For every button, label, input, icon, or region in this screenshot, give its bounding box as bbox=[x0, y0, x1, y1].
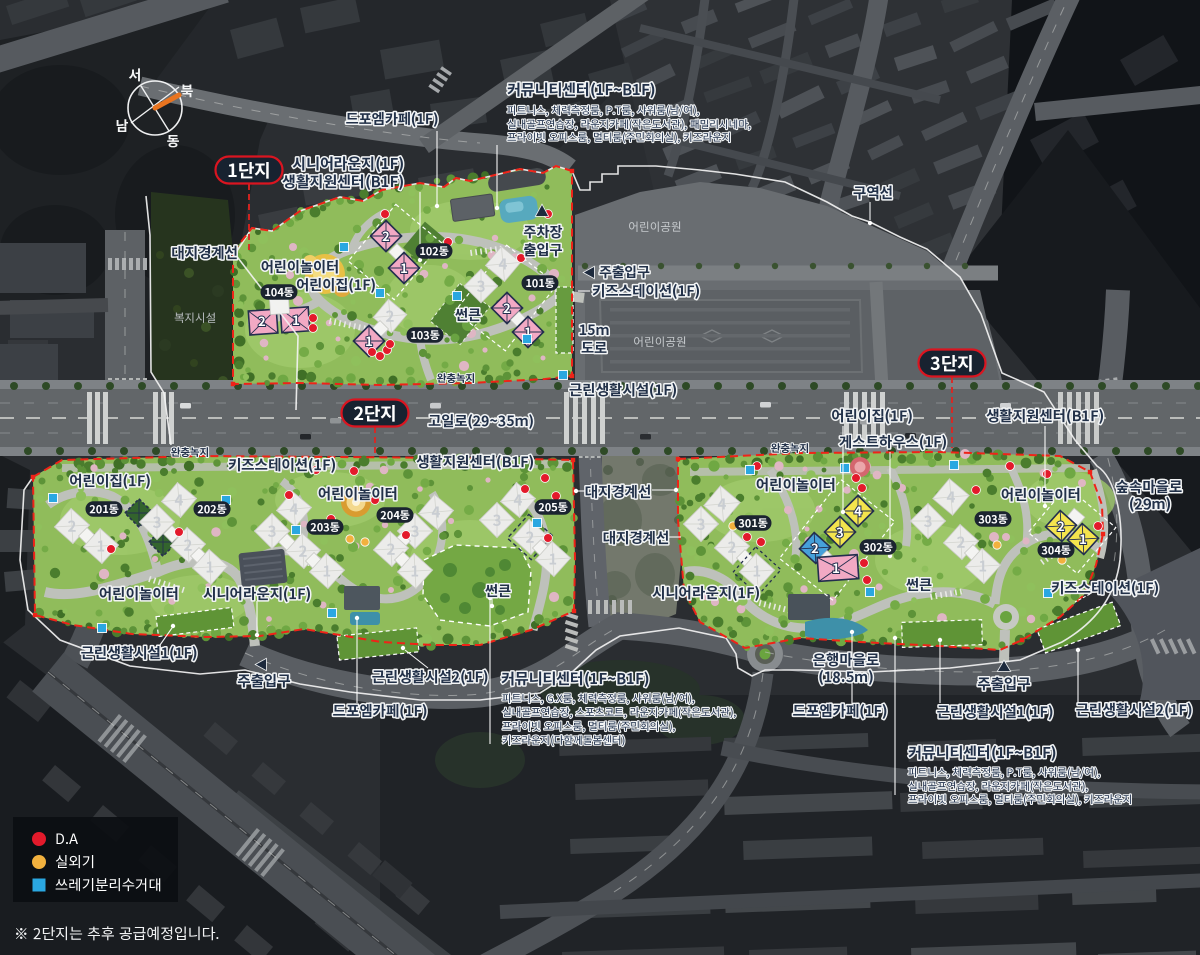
svg-text:102동: 102동 bbox=[419, 243, 449, 259]
svg-text:근린생활시설1(1F): 근린생활시설1(1F) bbox=[81, 642, 198, 663]
svg-text:2: 2 bbox=[68, 516, 77, 537]
svg-text:2: 2 bbox=[258, 311, 266, 330]
svg-text:시니어라운지(1F): 시니어라운지(1F) bbox=[203, 583, 312, 604]
svg-text:시니어라운지(1F): 시니어라운지(1F) bbox=[652, 582, 761, 603]
svg-text:어린이놀이터: 어린이놀이터 bbox=[318, 483, 398, 504]
svg-text:2: 2 bbox=[503, 298, 511, 317]
svg-text:완충녹지: 완충녹지 bbox=[437, 371, 476, 386]
svg-text:303동: 303동 bbox=[978, 511, 1008, 527]
svg-text:드포엠카페(1F): 드포엠카페(1F) bbox=[333, 700, 428, 721]
svg-text:101동: 101동 bbox=[525, 275, 555, 291]
svg-text:(29m): (29m) bbox=[1129, 493, 1172, 514]
svg-text:2: 2 bbox=[299, 541, 308, 562]
svg-text:2: 2 bbox=[526, 527, 535, 548]
svg-text:2: 2 bbox=[728, 537, 737, 558]
svg-text:4: 4 bbox=[854, 501, 862, 520]
svg-text:4: 4 bbox=[175, 490, 185, 511]
svg-text:키즈스테이션(1F): 키즈스테이션(1F) bbox=[592, 280, 701, 301]
svg-text:205동: 205동 bbox=[538, 499, 568, 515]
svg-text:게스트하우스(1F): 게스트하우스(1F) bbox=[839, 431, 948, 452]
svg-text:1: 1 bbox=[400, 258, 408, 277]
svg-text:동: 동 bbox=[167, 131, 180, 151]
svg-text:프라이빗 오피스룸, 멀티룸(주민회의실), 키즈라운지: 프라이빗 오피스룸, 멀티룸(주민회의실), 키즈라운지 bbox=[908, 792, 1133, 807]
svg-text:어린이놀이터: 어린이놀이터 bbox=[261, 257, 339, 277]
svg-text:키즈스테이션(1F): 키즈스테이션(1F) bbox=[1051, 577, 1160, 598]
svg-text:근린생활시설(1F): 근린생활시설(1F) bbox=[569, 379, 678, 400]
svg-text:104동: 104동 bbox=[264, 284, 294, 300]
svg-text:피트니스, 체력측정룸, P.T룸, 샤워룸(남/여),: 피트니스, 체력측정룸, P.T룸, 샤워룸(남/여), bbox=[908, 765, 1100, 780]
svg-text:※ 2단지는 추후 공급예정입니다.: ※ 2단지는 추후 공급예정입니다. bbox=[14, 923, 220, 944]
svg-text:어린이놀이터: 어린이놀이터 bbox=[756, 474, 836, 495]
svg-text:대지경계선: 대지경계선 bbox=[603, 527, 670, 548]
svg-text:프라이빗 오피스룸, 멀티룸(주민회의실), 키즈라운지: 프라이빗 오피스룸, 멀티룸(주민회의실), 키즈라운지 bbox=[507, 130, 732, 145]
svg-text:드포엠카페(1F): 드포엠카페(1F) bbox=[793, 700, 888, 721]
svg-text:3: 3 bbox=[477, 276, 486, 297]
svg-text:키즈라운지(다함께돌봄센터): 키즈라운지(다함께돌봄센터) bbox=[502, 733, 625, 748]
svg-text:고일로(29~35m): 고일로(29~35m) bbox=[428, 411, 533, 431]
svg-text:4: 4 bbox=[499, 254, 509, 275]
svg-text:202동: 202동 bbox=[197, 501, 227, 517]
svg-text:복지시설: 복지시설 bbox=[174, 310, 216, 326]
svg-text:어린이놀이터: 어린이놀이터 bbox=[1001, 484, 1081, 505]
svg-text:피트니스, G.X룸, 체력측정룸, 샤워룸(남/여),: 피트니스, G.X룸, 체력측정룸, 샤워룸(남/여), bbox=[502, 691, 695, 706]
svg-text:1: 1 bbox=[206, 557, 215, 578]
svg-text:피트니스, 체력측정룸, P.T룸, 샤워룸(남/여),: 피트니스, 체력측정룸, P.T룸, 샤워룸(남/여), bbox=[507, 103, 699, 118]
svg-text:3단지: 3단지 bbox=[930, 350, 974, 376]
svg-text:1: 1 bbox=[97, 536, 106, 557]
svg-text:1: 1 bbox=[411, 561, 420, 582]
svg-text:103동: 103동 bbox=[410, 327, 440, 343]
svg-text:2: 2 bbox=[811, 538, 819, 557]
svg-text:1: 1 bbox=[1079, 529, 1087, 548]
svg-text:3: 3 bbox=[836, 522, 844, 541]
svg-text:4: 4 bbox=[718, 494, 728, 515]
svg-text:실내골프연습장, 스포츠코트, 라운지카페(작은도서관),: 실내골프연습장, 스포츠코트, 라운지카페(작은도서관), bbox=[502, 705, 736, 720]
svg-text:1: 1 bbox=[292, 310, 300, 329]
svg-text:썬큰: 썬큰 bbox=[485, 581, 511, 601]
svg-text:15m: 15m bbox=[579, 320, 609, 340]
svg-text:1: 1 bbox=[979, 556, 988, 577]
svg-text:2단지: 2단지 bbox=[353, 400, 397, 426]
svg-text:주출입구: 주출입구 bbox=[599, 261, 650, 281]
svg-text:4: 4 bbox=[290, 499, 300, 520]
svg-text:출입구: 출입구 bbox=[523, 240, 562, 260]
svg-text:304동: 304동 bbox=[1041, 542, 1071, 558]
svg-text:(18.5m): (18.5m) bbox=[818, 666, 874, 687]
svg-text:1: 1 bbox=[549, 549, 558, 570]
svg-text:301동: 301동 bbox=[738, 515, 768, 531]
svg-text:커뮤니티센터(1F~B1F): 커뮤니티센터(1F~B1F) bbox=[507, 79, 656, 100]
svg-text:완충녹지: 완충녹지 bbox=[171, 445, 210, 460]
svg-text:생활지원센터(B1F): 생활지원센터(B1F) bbox=[282, 171, 404, 192]
svg-text:1단지: 1단지 bbox=[227, 157, 271, 183]
svg-text:서: 서 bbox=[129, 65, 142, 85]
svg-text:어린이집(1F): 어린이집(1F) bbox=[296, 275, 376, 295]
svg-text:생활지원센터(B1F): 생활지원센터(B1F) bbox=[416, 451, 534, 472]
svg-text:3: 3 bbox=[924, 511, 933, 532]
svg-text:D.A: D.A bbox=[55, 828, 78, 849]
svg-text:근린생활시설2(1F): 근린생활시설2(1F) bbox=[372, 666, 489, 687]
svg-text:3: 3 bbox=[697, 514, 706, 535]
svg-text:3: 3 bbox=[268, 521, 277, 542]
svg-text:4: 4 bbox=[432, 502, 442, 523]
svg-text:2: 2 bbox=[387, 539, 396, 560]
svg-text:주출입구: 주출입구 bbox=[237, 670, 291, 691]
svg-text:주출입구: 주출입구 bbox=[977, 673, 1031, 694]
svg-text:4: 4 bbox=[947, 487, 957, 508]
svg-text:키즈스테이션(1F): 키즈스테이션(1F) bbox=[228, 454, 337, 475]
svg-text:2: 2 bbox=[382, 226, 390, 245]
svg-text:어린이집(1F): 어린이집(1F) bbox=[69, 470, 151, 491]
svg-text:대지경계선: 대지경계선 bbox=[171, 242, 238, 263]
svg-text:2: 2 bbox=[386, 306, 395, 327]
svg-text:203동: 203동 bbox=[310, 519, 340, 535]
svg-text:2: 2 bbox=[1057, 516, 1065, 535]
svg-text:어린이공원: 어린이공원 bbox=[629, 219, 682, 235]
svg-text:완충녹지: 완충녹지 bbox=[771, 441, 810, 456]
svg-text:생활지원센터(B1F): 생활지원센터(B1F) bbox=[986, 405, 1104, 426]
svg-text:프라이빗 오피스룸, 멀티룸(주민회의실),: 프라이빗 오피스룸, 멀티룸(주민회의실), bbox=[502, 719, 675, 734]
svg-text:주차장: 주차장 bbox=[523, 222, 562, 242]
svg-text:도로: 도로 bbox=[581, 338, 607, 358]
svg-text:드포엠카페(1F): 드포엠카페(1F) bbox=[346, 109, 439, 129]
svg-text:1: 1 bbox=[753, 561, 762, 582]
svg-text:북: 북 bbox=[181, 81, 194, 101]
svg-text:남: 남 bbox=[116, 116, 129, 136]
svg-text:302동: 302동 bbox=[863, 539, 893, 555]
svg-text:2: 2 bbox=[184, 535, 193, 556]
svg-text:어린이놀이터: 어린이놀이터 bbox=[99, 583, 179, 604]
svg-text:3: 3 bbox=[153, 512, 162, 533]
svg-text:1: 1 bbox=[365, 331, 373, 350]
svg-text:201동: 201동 bbox=[89, 501, 119, 517]
svg-text:어린이집(1F): 어린이집(1F) bbox=[831, 405, 913, 426]
svg-text:근린생활시설2(1F): 근린생활시설2(1F) bbox=[1076, 699, 1193, 720]
svg-text:구역선: 구역선 bbox=[853, 182, 893, 203]
svg-text:쓰레기분리수거대: 쓰레기분리수거대 bbox=[55, 874, 162, 895]
svg-text:어린이공원: 어린이공원 bbox=[634, 334, 687, 350]
svg-text:204동: 204동 bbox=[380, 507, 410, 523]
svg-text:대지경계선: 대지경계선 bbox=[585, 481, 652, 502]
svg-text:1: 1 bbox=[832, 558, 840, 577]
svg-text:썬큰: 썬큰 bbox=[906, 575, 932, 595]
svg-text:근린생활시설1(1F): 근린생활시설1(1F) bbox=[937, 701, 1054, 722]
svg-text:3: 3 bbox=[493, 510, 502, 531]
svg-text:3: 3 bbox=[411, 521, 420, 542]
svg-text:1: 1 bbox=[323, 561, 332, 582]
svg-text:실외기: 실외기 bbox=[55, 851, 95, 872]
svg-text:커뮤니티센터(1F~B1F): 커뮤니티센터(1F~B1F) bbox=[908, 742, 1057, 763]
svg-text:썬큰: 썬큰 bbox=[455, 305, 481, 325]
svg-text:커뮤니티센터(1F~B1F): 커뮤니티센터(1F~B1F) bbox=[501, 668, 650, 689]
svg-text:2: 2 bbox=[957, 532, 966, 553]
